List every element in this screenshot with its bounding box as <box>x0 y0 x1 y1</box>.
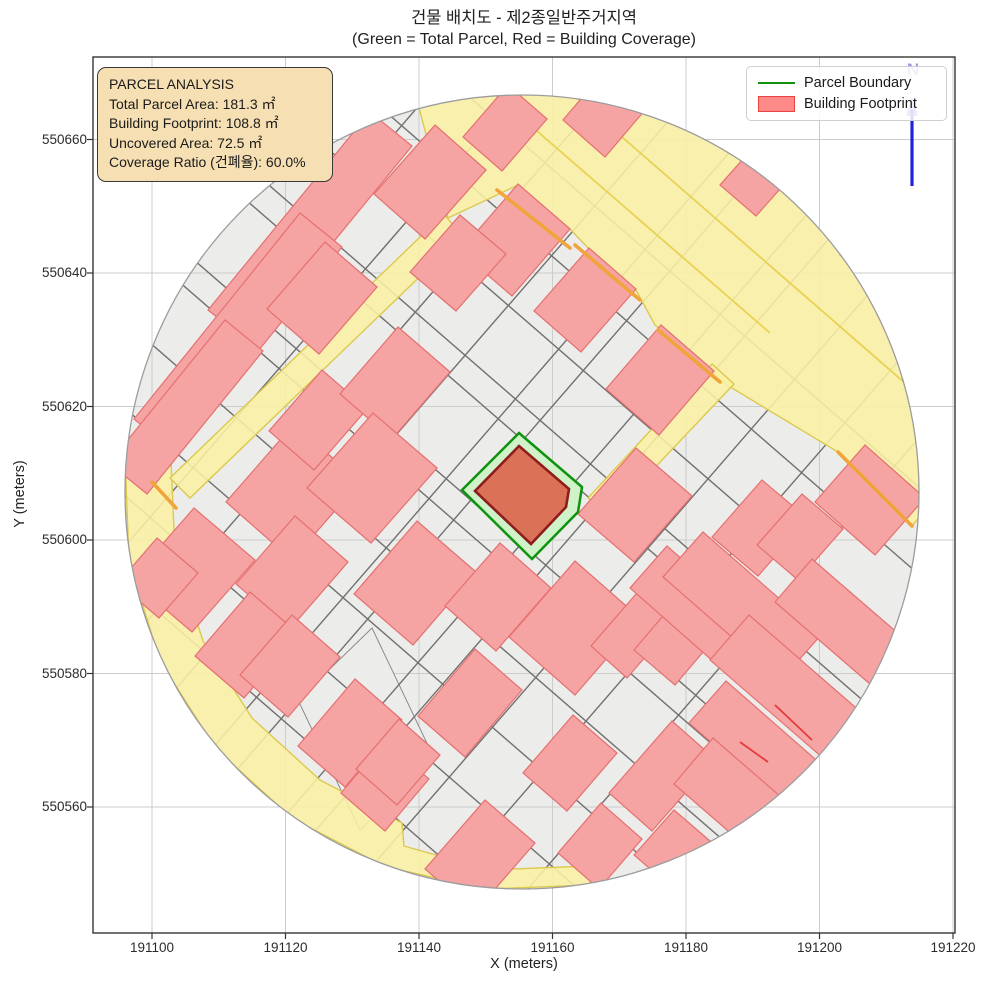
x-axis-label: X (meters) <box>93 956 955 972</box>
parcel-analysis-box: PARCEL ANALYSIS Total Parcel Area: 181.3… <box>97 67 333 182</box>
title-line-1: 건물 배치도 - 제2종일반주거지역 <box>93 4 955 28</box>
title-line-2: (Green = Total Parcel, Red = Building Co… <box>93 31 955 49</box>
legend-label: Building Footprint <box>804 96 917 112</box>
legend-item-parcel-boundary: Parcel Boundary <box>747 75 946 91</box>
legend-label: Parcel Boundary <box>804 75 911 91</box>
figure: 건물 배치도 - 제2종일반주거지역 (Green = Total Parcel… <box>0 0 986 990</box>
legend: Parcel Boundary Building Footprint <box>746 66 947 121</box>
analysis-uncovered-area: Uncovered Area: 72.5 ㎡ <box>109 134 321 154</box>
green-line-swatch <box>758 82 795 84</box>
red-patch-swatch <box>758 96 795 112</box>
legend-item-building-footprint: Building Footprint <box>747 96 946 112</box>
chart-title: 건물 배치도 - 제2종일반주거지역 (Green = Total Parcel… <box>93 4 955 49</box>
analysis-total-area: Total Parcel Area: 181.3 ㎡ <box>109 95 321 115</box>
analysis-building-footprint: Building Footprint: 108.8 ㎡ <box>109 114 321 134</box>
analysis-title: PARCEL ANALYSIS <box>109 75 321 95</box>
analysis-coverage-ratio: Coverage Ratio (건폐율): 60.0% <box>109 153 321 173</box>
y-axis-label: Y (meters) <box>12 432 28 556</box>
